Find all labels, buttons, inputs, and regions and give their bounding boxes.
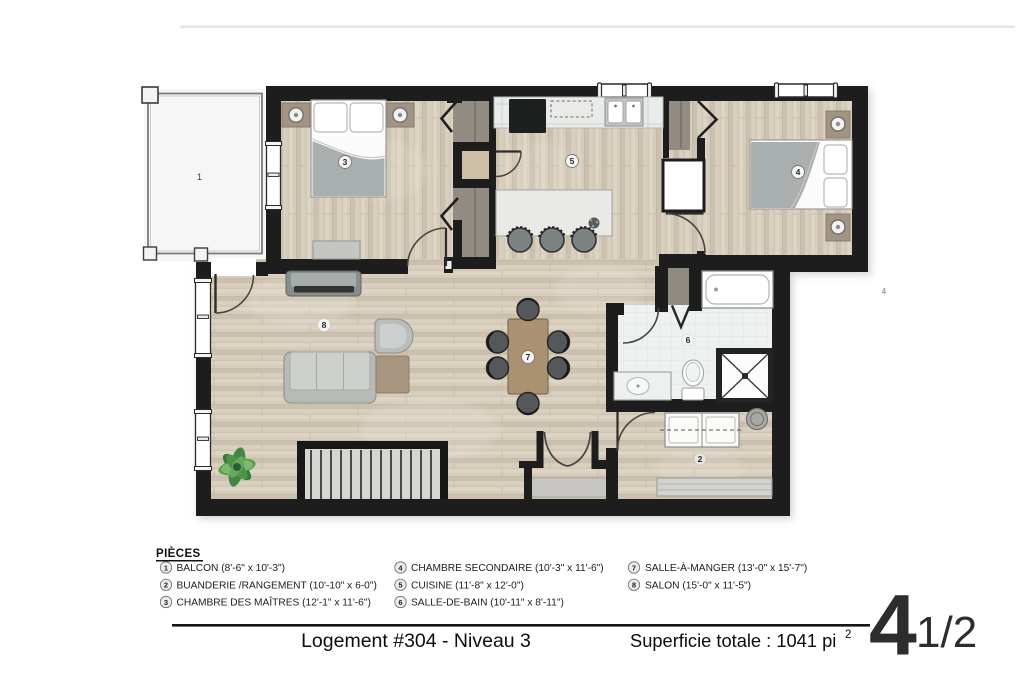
svg-text:4: 4 [796,167,801,177]
svg-text:4: 4 [869,578,917,674]
svg-text:7: 7 [526,352,531,362]
svg-text:8: 8 [322,320,327,330]
svg-text:SALLE-À-MANGER (13'-0" x 15'-7: SALLE-À-MANGER (13'-0" x 15'-7") [645,561,807,574]
svg-text:2: 2 [845,629,851,641]
svg-text:1: 1 [197,172,202,182]
svg-text:5: 5 [570,156,575,166]
svg-text:BALCON (8'-6" x 10'-3"): BALCON (8'-6" x 10'-3") [177,563,286,574]
svg-text:2: 2 [164,581,168,590]
svg-text:6: 6 [398,598,402,607]
svg-text:Logement #304 - Niveau 3: Logement #304 - Niveau 3 [301,630,531,652]
svg-text:1: 1 [164,563,168,572]
svg-text:5: 5 [398,581,402,590]
svg-text:3: 3 [164,598,168,607]
svg-text:CHAMBRE DES MAÎTRES (12'-1" x: CHAMBRE DES MAÎTRES (12'-1" x 11'-6") [177,596,371,609]
svg-text:PIÈCES: PIÈCES [156,547,201,560]
svg-text:2: 2 [698,454,703,464]
svg-text:Superficie totale : 1041 pi: Superficie totale : 1041 pi [630,630,836,651]
svg-text:8: 8 [632,581,636,590]
svg-text:1/2: 1/2 [916,608,977,657]
svg-text:7: 7 [632,563,636,572]
svg-text:3: 3 [343,157,348,167]
svg-text:6: 6 [686,335,691,345]
svg-text:4: 4 [882,287,887,296]
svg-text:BUANDERIE /RANGEMENT (10'-10": BUANDERIE /RANGEMENT (10'-10" x 6-0") [177,580,377,591]
svg-text:CHAMBRE SECONDAIRE (10'-3" x 1: CHAMBRE SECONDAIRE (10'-3" x 11'-6") [411,563,604,574]
svg-text:CUISINE (11'-8" x 12'-0"): CUISINE (11'-8" x 12'-0") [411,580,524,591]
svg-text:SALON (15'-0" x 11'-5"): SALON (15'-0" x 11'-5") [645,580,751,591]
svg-text:SALLE-DE-BAIN (10'-11" x 8'-11: SALLE-DE-BAIN (10'-11" x 8'-11") [411,598,564,609]
